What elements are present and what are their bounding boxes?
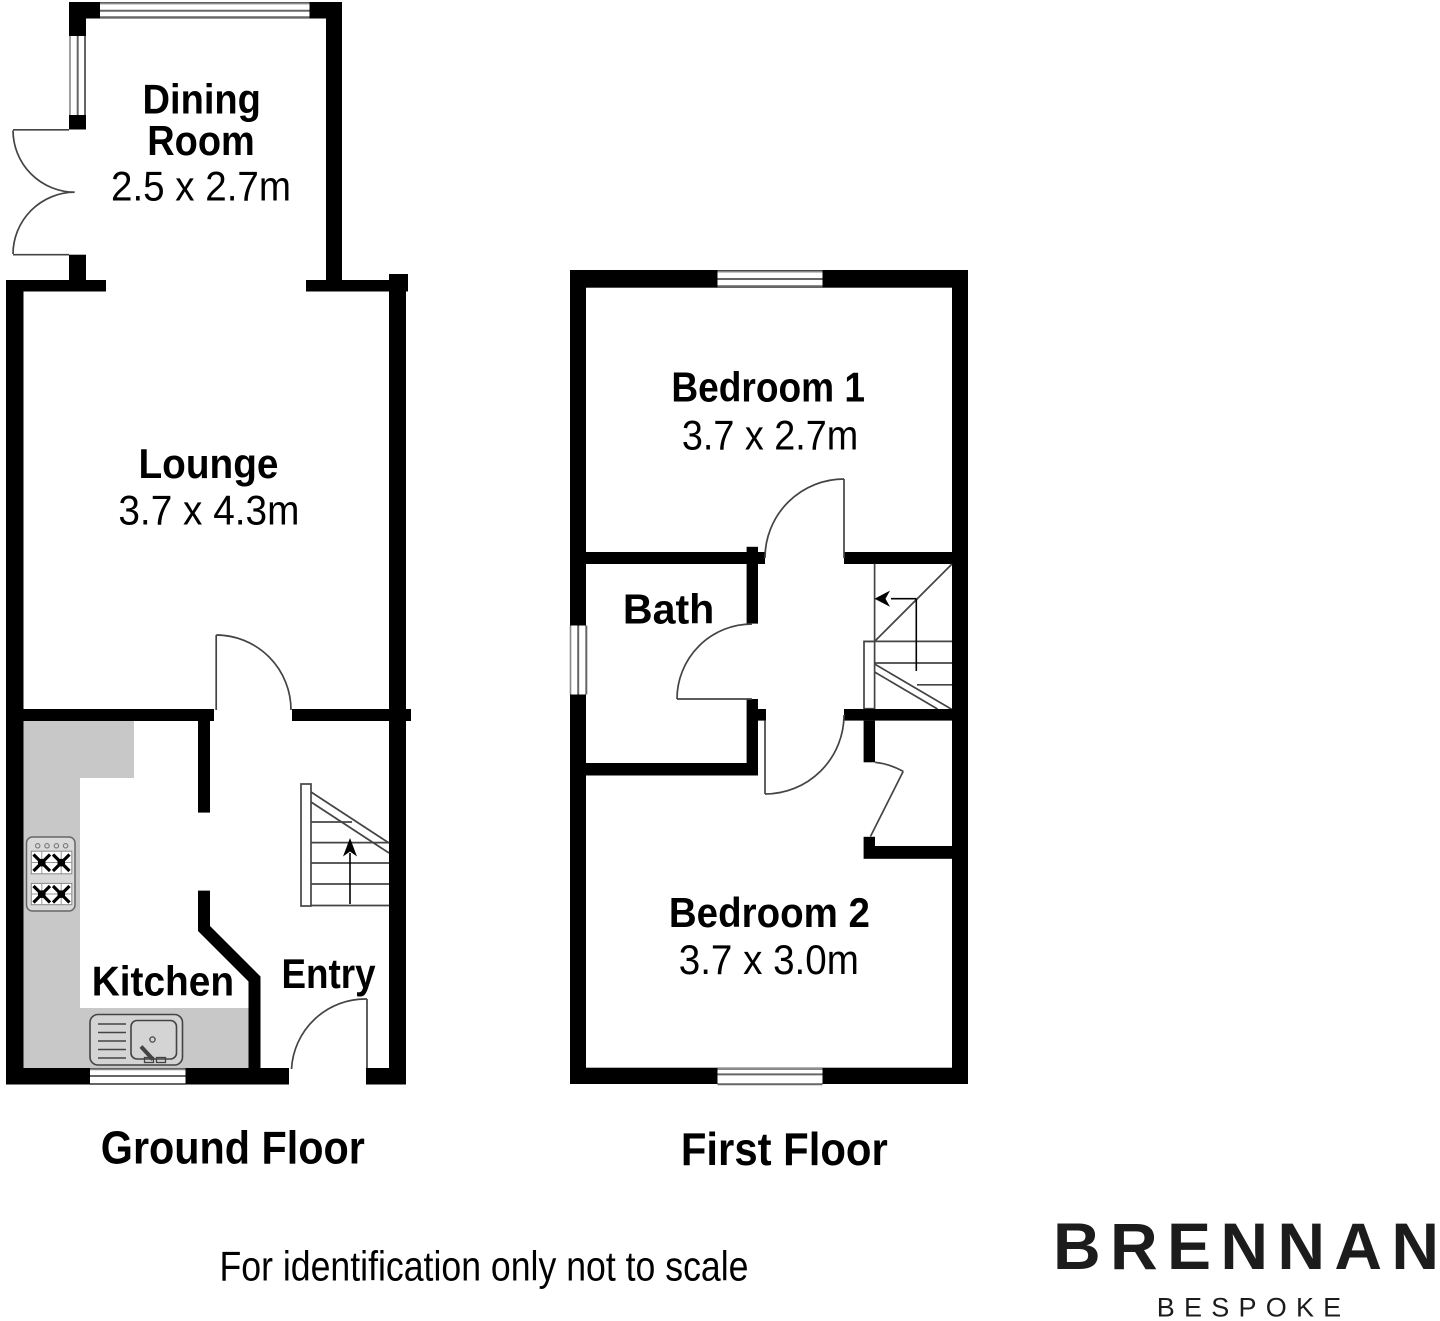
- svg-text:Bath: Bath: [623, 586, 715, 633]
- svg-text:2.5 x 2.7m: 2.5 x 2.7m: [111, 162, 291, 209]
- svg-text:Room: Room: [147, 117, 255, 164]
- svg-text:BRENNAN: BRENNAN: [1053, 1209, 1439, 1283]
- svg-text:For identification only not to: For identification only not to scale: [220, 1242, 749, 1289]
- svg-text:Kitchen: Kitchen: [92, 958, 234, 1005]
- svg-text:Ground Floor: Ground Floor: [101, 1122, 365, 1174]
- svg-text:BESPOKE: BESPOKE: [1157, 1292, 1341, 1321]
- svg-text:Entry: Entry: [281, 950, 376, 997]
- svg-text:Bedroom 1: Bedroom 1: [671, 363, 865, 410]
- svg-text:First Floor: First Floor: [681, 1123, 888, 1175]
- svg-text:Lounge: Lounge: [139, 440, 279, 487]
- svg-text:Bedroom 2: Bedroom 2: [669, 889, 870, 936]
- svg-text:3.7 x 4.3m: 3.7 x 4.3m: [118, 487, 299, 534]
- svg-text:Dining: Dining: [143, 76, 261, 123]
- svg-text:3.7 x 3.0m: 3.7 x 3.0m: [679, 936, 859, 983]
- svg-text:3.7 x 2.7m: 3.7 x 2.7m: [682, 412, 858, 459]
